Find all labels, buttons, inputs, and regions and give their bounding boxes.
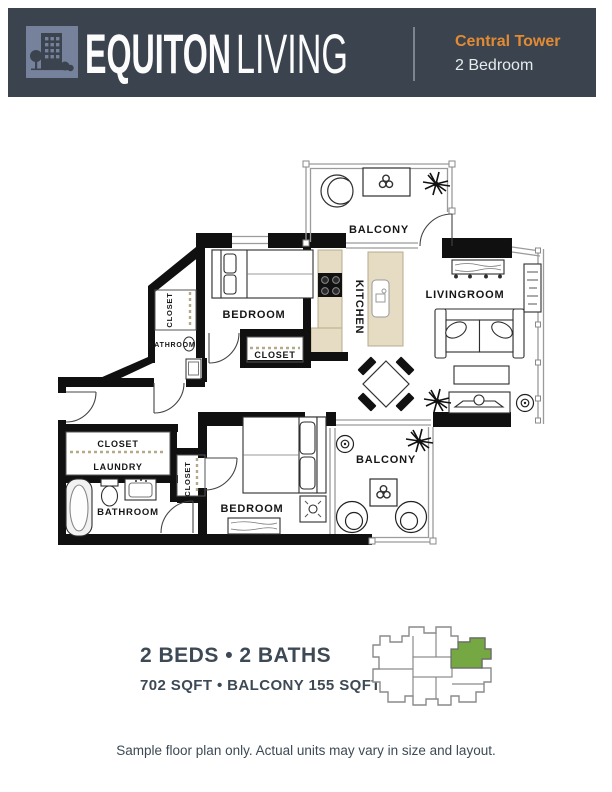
livingroom-furniture	[424, 260, 541, 413]
label-closet-lower-mid: CLOSET	[183, 461, 192, 496]
bottom-balcony-furniture	[337, 429, 434, 533]
unit-stats: 2 BEDS • 2 BATHS 702 SQFT • BALCONY 155 …	[140, 644, 381, 694]
label-bedroom-lower: BEDROOM	[220, 503, 283, 515]
label-livingroom: LIVINGROOM	[426, 289, 505, 301]
label-balcony-lower: BALCONY	[356, 454, 416, 466]
building-keyplan	[360, 612, 510, 722]
label-laundry: LAUNDRY	[93, 462, 142, 472]
master-bedroom-furniture	[228, 417, 326, 534]
beds-baths: 2 BEDS • 2 BATHS	[140, 644, 381, 668]
floorplan-sheet: EQUITON LIVING Central Tower 2 Bedroom	[0, 0, 612, 792]
dining-set	[357, 356, 414, 411]
square-footage: 702 SQFT • BALCONY 155 SQFT	[140, 677, 381, 694]
label-closet-mid: CLOSET	[254, 350, 295, 360]
label-closet-lower-left: CLOSET	[97, 439, 138, 449]
top-bedroom-furniture	[212, 250, 313, 298]
top-balcony-furniture	[321, 168, 450, 207]
label-bathroom-lower: BATHROOM	[97, 507, 159, 518]
disclaimer: Sample floor plan only. Actual units may…	[0, 743, 612, 758]
label-bedroom-top: BEDROOM	[222, 309, 285, 321]
label-bathroom-top: BATHROOM	[148, 342, 195, 349]
label-kitchen: KITCHEN	[353, 280, 365, 335]
label-closet-top-left: CLOSET	[165, 292, 174, 327]
label-balcony-top: BALCONY	[349, 224, 409, 236]
